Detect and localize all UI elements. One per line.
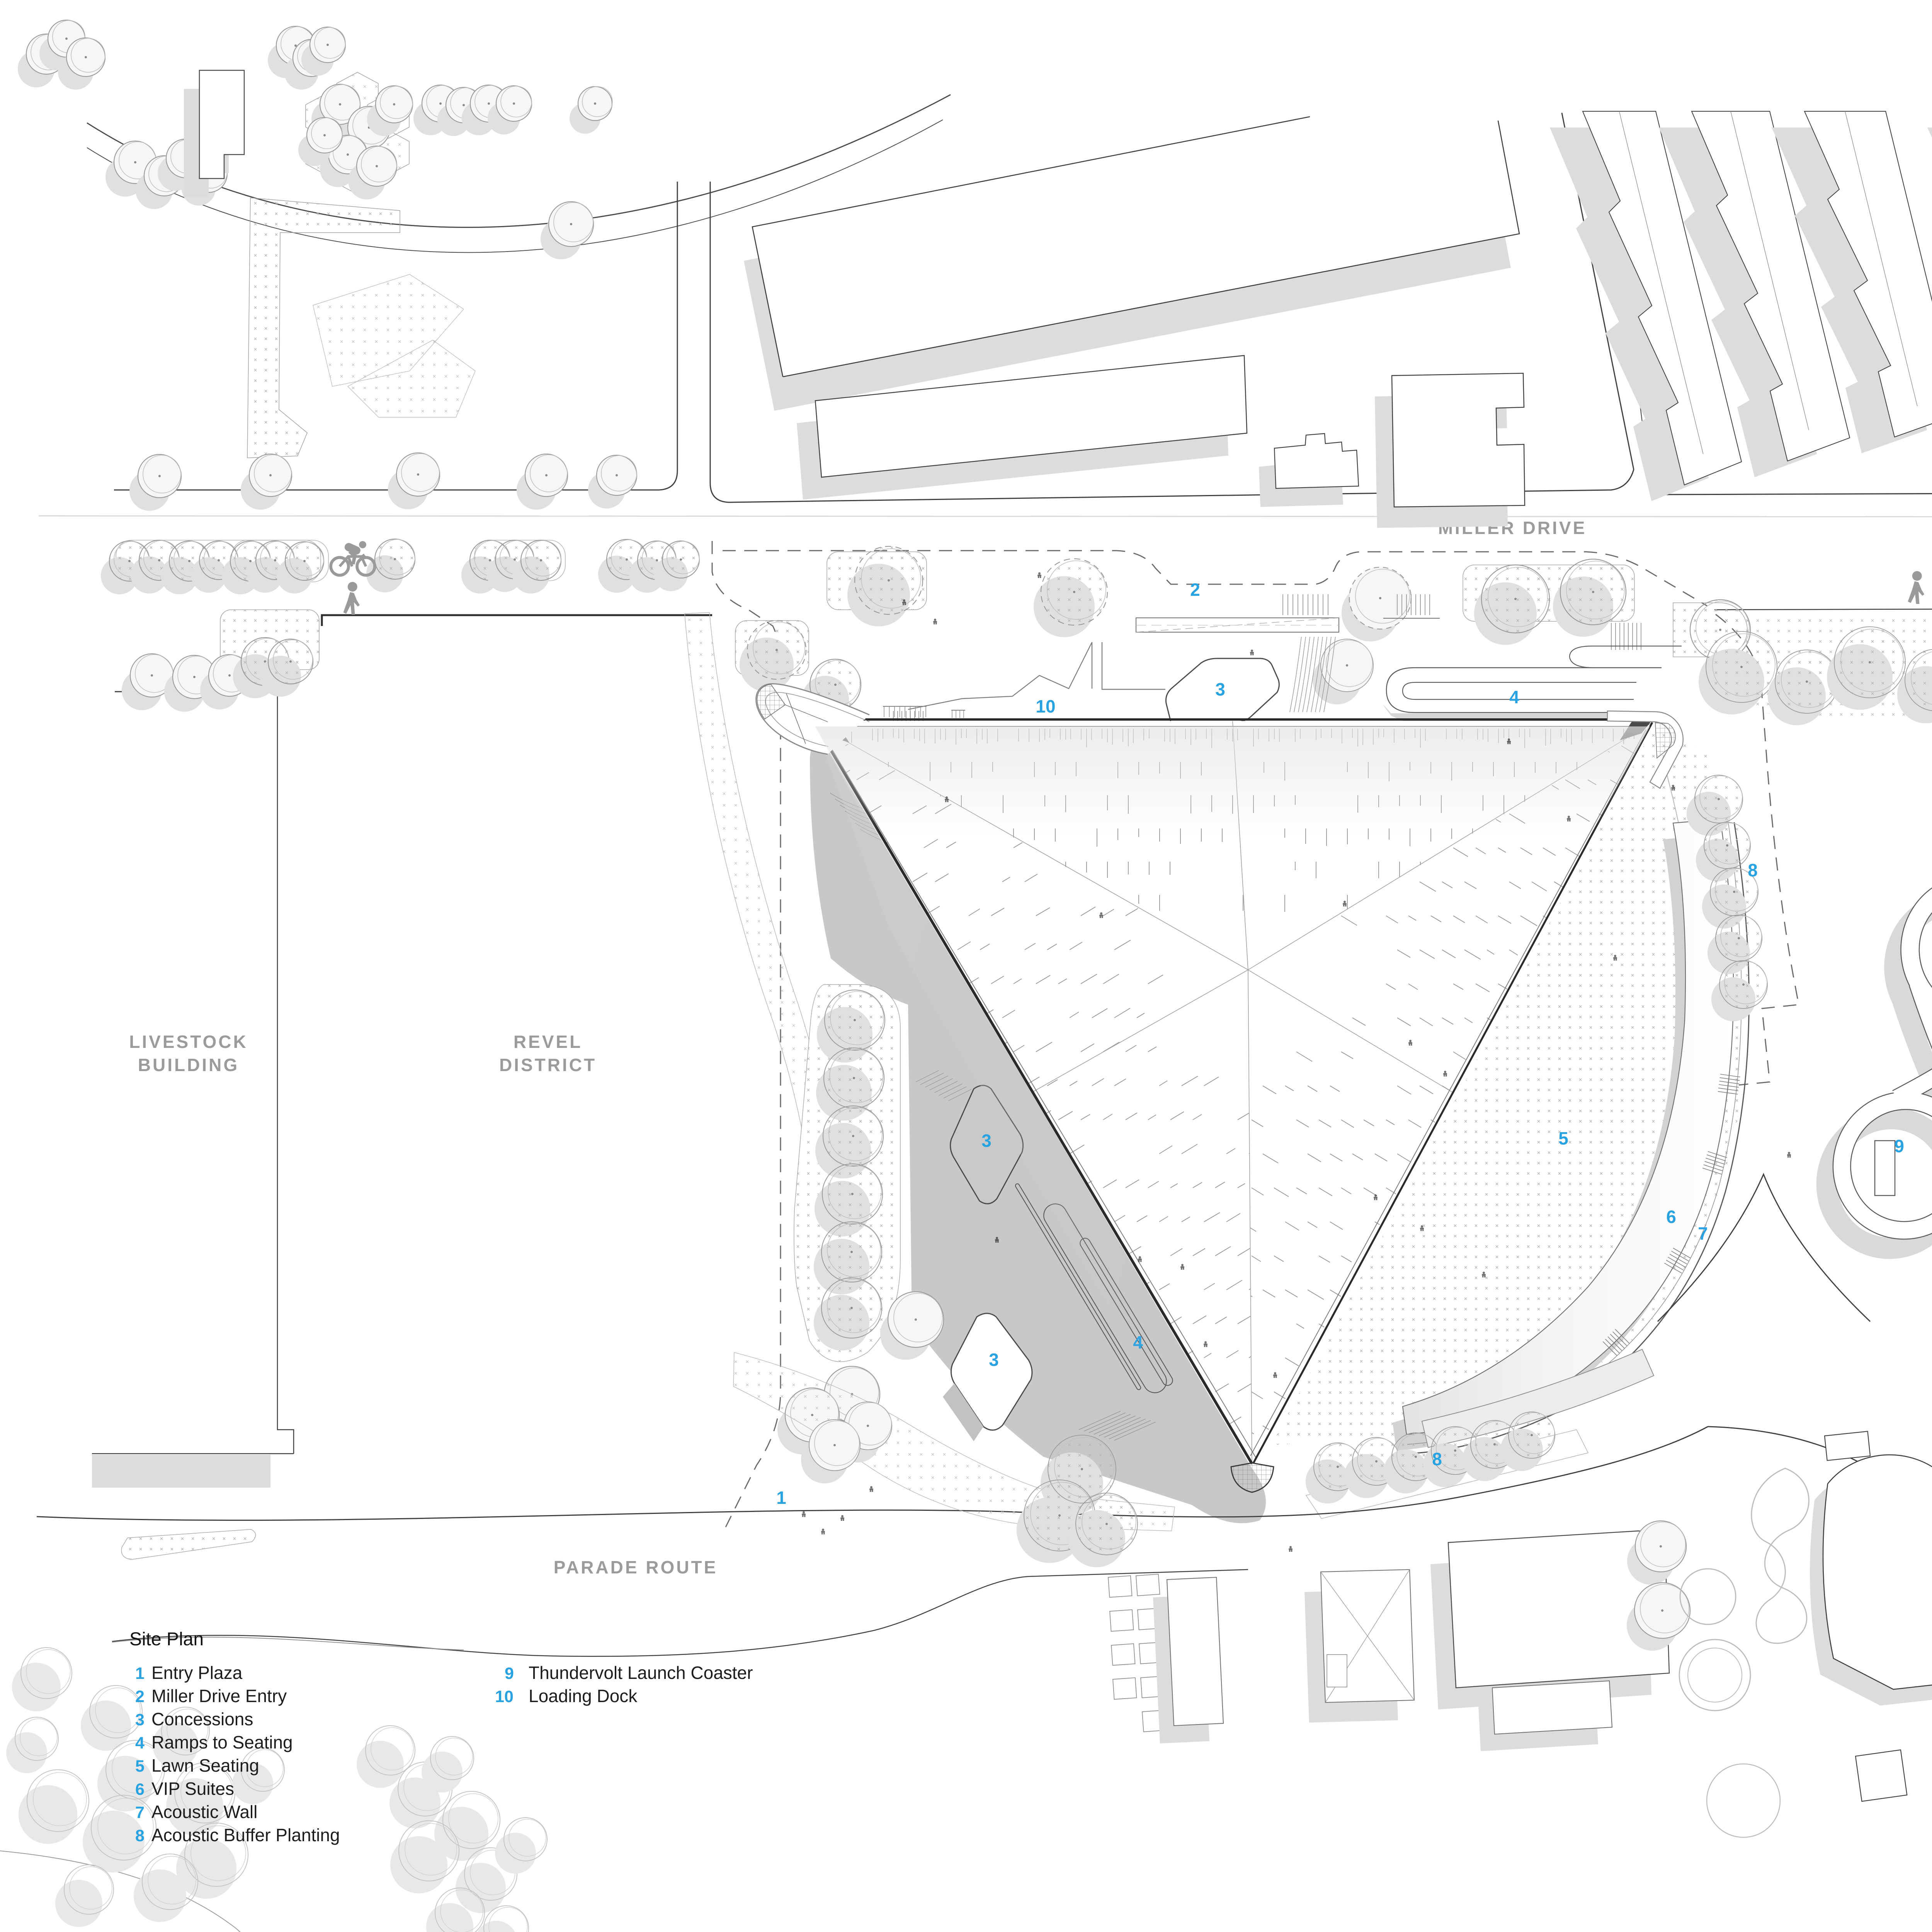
svg-text:Acoustic Wall: Acoustic Wall [151, 1802, 257, 1822]
svg-text:3: 3 [135, 1711, 145, 1729]
svg-text:PARADE ROUTE: PARADE ROUTE [554, 1557, 718, 1577]
svg-text:4: 4 [1509, 687, 1519, 707]
svg-text:3: 3 [989, 1350, 999, 1370]
svg-text:10: 10 [495, 1687, 514, 1706]
svg-text:Entry Plaza: Entry Plaza [151, 1663, 243, 1683]
svg-text:Concessions: Concessions [151, 1709, 253, 1729]
svg-text:Acoustic Buffer Planting: Acoustic Buffer Planting [151, 1825, 340, 1845]
svg-text:5: 5 [1558, 1128, 1568, 1148]
svg-text:VIP Suites: VIP Suites [151, 1779, 234, 1799]
svg-text:Lawn Seating: Lawn Seating [151, 1755, 259, 1776]
svg-text:6: 6 [135, 1780, 145, 1799]
svg-text:10: 10 [1036, 696, 1055, 716]
svg-text:Miller Drive Entry: Miller Drive Entry [151, 1686, 287, 1706]
svg-text:Loading Dock: Loading Dock [529, 1686, 638, 1706]
svg-text:3: 3 [1215, 679, 1225, 699]
svg-text:4: 4 [135, 1734, 145, 1752]
svg-text:1: 1 [135, 1664, 145, 1683]
svg-text:3: 3 [981, 1131, 992, 1151]
svg-text:Ramps to Seating: Ramps to Seating [151, 1732, 293, 1752]
svg-text:6: 6 [1666, 1207, 1676, 1227]
svg-text:9: 9 [505, 1664, 514, 1683]
svg-text:Thundervolt Launch Coaster: Thundervolt Launch Coaster [529, 1663, 753, 1683]
svg-text:8: 8 [135, 1827, 145, 1845]
svg-text:LIVESTOCK: LIVESTOCK [129, 1032, 248, 1052]
svg-text:5: 5 [135, 1757, 145, 1776]
svg-text:DISTRICT: DISTRICT [499, 1055, 597, 1075]
svg-text:Site Plan: Site Plan [129, 1629, 204, 1650]
svg-text:7: 7 [1698, 1223, 1708, 1243]
svg-text:2: 2 [1190, 580, 1200, 600]
svg-text:8: 8 [1748, 860, 1758, 880]
svg-text:REVEL: REVEL [514, 1032, 582, 1052]
svg-text:9: 9 [1894, 1136, 1904, 1156]
svg-text:2: 2 [135, 1687, 145, 1706]
svg-text:7: 7 [135, 1803, 145, 1822]
svg-text:BUILDING: BUILDING [138, 1055, 239, 1075]
svg-text:8: 8 [1432, 1449, 1442, 1469]
svg-text:1: 1 [776, 1488, 786, 1508]
